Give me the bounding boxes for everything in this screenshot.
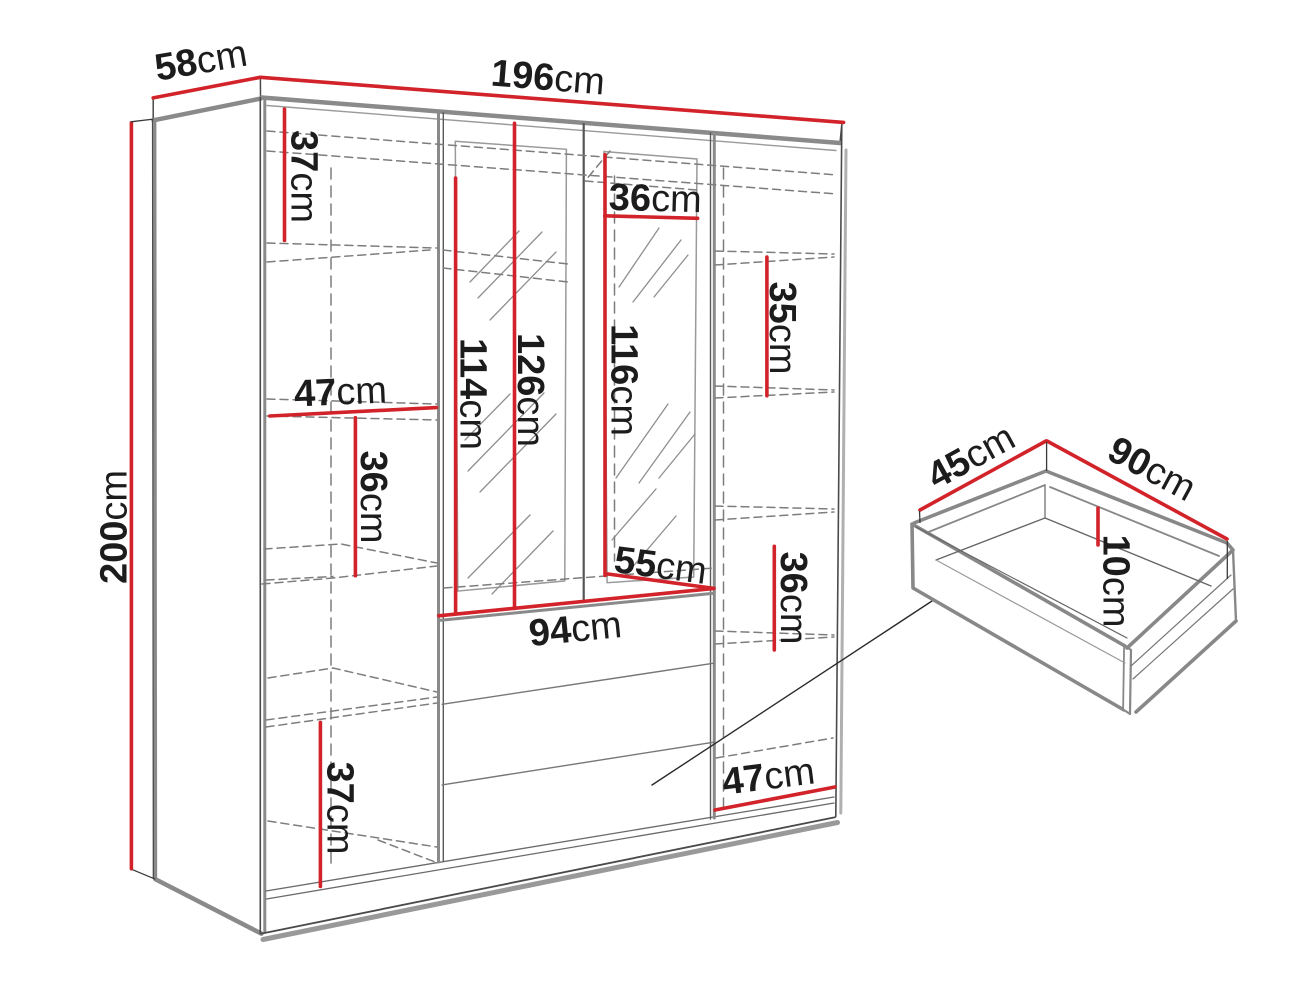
svg-text:37cm: 37cm — [283, 130, 325, 223]
svg-text:114cm: 114cm — [452, 338, 494, 450]
svg-text:200cm: 200cm — [94, 470, 136, 584]
svg-text:37cm: 37cm — [319, 762, 361, 855]
svg-text:35cm: 35cm — [761, 282, 803, 375]
svg-text:47cm: 47cm — [293, 370, 388, 416]
svg-text:36cm: 36cm — [352, 451, 394, 544]
svg-text:36cm: 36cm — [772, 552, 814, 645]
svg-text:36cm: 36cm — [608, 177, 702, 221]
svg-text:126cm: 126cm — [509, 333, 551, 447]
svg-text:10cm: 10cm — [1095, 535, 1137, 628]
svg-text:116cm: 116cm — [603, 324, 645, 436]
